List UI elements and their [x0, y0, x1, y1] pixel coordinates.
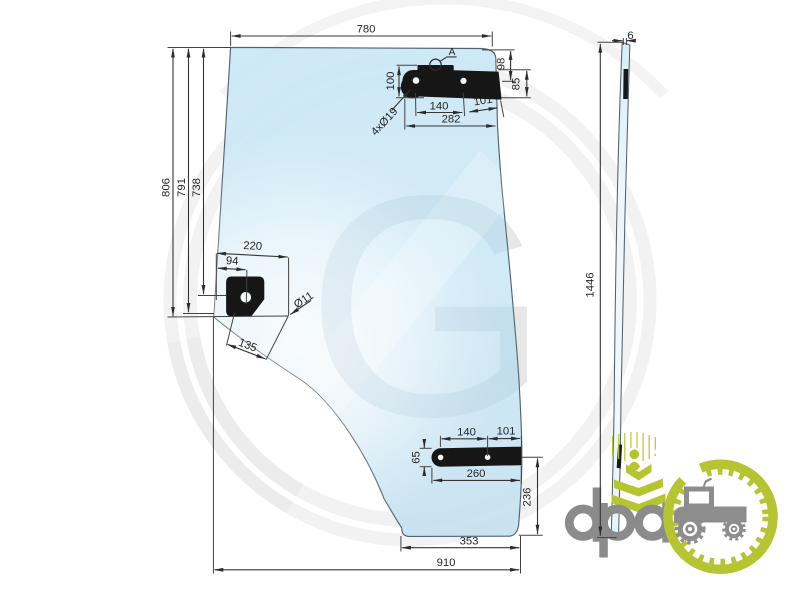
svg-text:220: 220 [243, 240, 262, 253]
svg-text:140: 140 [457, 427, 476, 439]
svg-text:100: 100 [385, 72, 397, 91]
svg-text:780: 780 [357, 24, 376, 36]
svg-text:260: 260 [467, 468, 486, 480]
svg-text:738: 738 [191, 178, 203, 197]
svg-text:236: 236 [522, 488, 534, 507]
svg-text:1446: 1446 [585, 272, 597, 297]
svg-text:101: 101 [497, 426, 516, 438]
svg-text:A: A [449, 47, 456, 58]
svg-text:910: 910 [437, 557, 456, 569]
svg-text:140: 140 [430, 101, 449, 113]
svg-text:282: 282 [442, 114, 461, 126]
svg-text:98: 98 [496, 58, 508, 71]
svg-text:6: 6 [627, 30, 633, 42]
svg-text:806: 806 [161, 178, 173, 197]
svg-text:353: 353 [460, 536, 479, 548]
svg-text:791: 791 [176, 178, 188, 197]
svg-text:94: 94 [226, 255, 239, 268]
svg-text:85: 85 [511, 78, 523, 91]
svg-text:65: 65 [411, 451, 423, 464]
